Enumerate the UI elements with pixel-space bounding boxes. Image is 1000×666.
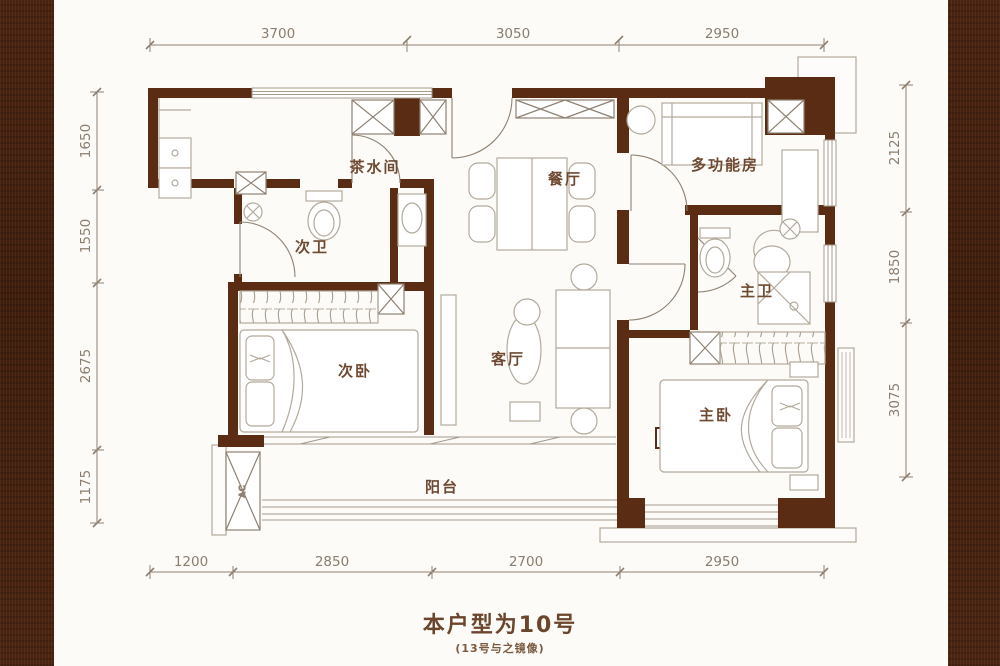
label-living-room: 客厅 (490, 350, 525, 368)
dim-top-3: 2950 (705, 26, 739, 42)
sliding-door-balcony (264, 437, 616, 444)
wash-basin-niche (398, 194, 426, 246)
dim-top-1: 3700 (261, 26, 295, 42)
dim-left-2: 1550 (78, 219, 94, 253)
bedroom2-wardrobe (240, 291, 378, 323)
second-bathroom-fan (244, 203, 262, 221)
master-wardrobe (720, 332, 825, 364)
label-balcony: 阳台 (425, 478, 459, 496)
window-masterbath-right (824, 245, 836, 302)
window-multifunction-right (824, 140, 836, 206)
bedroom2-bed (240, 330, 418, 432)
entry-door (452, 98, 512, 158)
label-second-bathroom: 次卫 (295, 238, 329, 256)
label-multi-function: 多功能房 (691, 156, 759, 174)
label-master-bathroom: 主卫 (740, 282, 774, 300)
dim-right-2: 1850 (887, 250, 903, 284)
second-bathroom-door (240, 222, 295, 277)
shaft-master-wardrobe (690, 332, 720, 364)
label-dining-room: 餐厅 (548, 170, 582, 188)
master-bed (660, 362, 818, 490)
label-tea-room: 茶水间 (349, 158, 400, 176)
living-sofa (556, 264, 610, 434)
bay-ledge-bottom (600, 528, 856, 542)
label-second-bedroom: 次卧 (338, 362, 372, 380)
ac-unit-label: AC (238, 485, 247, 498)
living-tv-console (441, 295, 456, 425)
cabinet-dining-top (516, 100, 614, 118)
master-bathroom-fan (780, 219, 800, 239)
ledge-bottom-left (212, 445, 226, 535)
dim-left-4: 1175 (78, 470, 94, 504)
shaft-bedroom2 (378, 284, 404, 314)
tearoom-sink (159, 98, 191, 198)
window-tearoom-top (252, 88, 432, 98)
dim-left-1: 1650 (78, 124, 94, 158)
shaft-tearoom-band (236, 172, 266, 194)
shaft-entry-right (420, 100, 446, 134)
shaft-entry-left (352, 100, 394, 134)
second-bathroom-toilet (306, 191, 342, 240)
dim-right-1: 2125 (887, 131, 903, 165)
unit-mirror-subtitle: (13号与之镜像) (0, 642, 1000, 656)
floorplan-page: 3700 3050 2950 1200 2850 2700 2950 1650 … (0, 0, 1000, 666)
window-masterbedroom-bottom (645, 505, 778, 526)
dim-bottom-2: 2850 (315, 554, 349, 570)
dim-bottom-4: 2950 (705, 554, 739, 570)
window-balcony-front (262, 500, 617, 520)
dim-right-3: 3075 (887, 383, 903, 417)
dim-top-2: 3050 (496, 26, 530, 42)
dim-left-3: 2675 (78, 349, 94, 383)
master-bathroom-toilet (700, 228, 730, 277)
ac-unit-box: AC (226, 452, 260, 530)
label-master-bedroom: 主卧 (699, 406, 733, 424)
shaft-corner-topright (768, 100, 804, 133)
dim-bottom-3: 2700 (509, 554, 543, 570)
floorplan-drawing: 3700 3050 2950 1200 2850 2700 2950 1650 … (0, 0, 1000, 666)
unit-number-title: 本户型为10号 (0, 612, 1000, 640)
caption: 本户型为10号 (13号与之镜像) (0, 612, 1000, 655)
dim-bottom-1: 1200 (174, 554, 208, 570)
master-bedroom-door (629, 264, 685, 320)
